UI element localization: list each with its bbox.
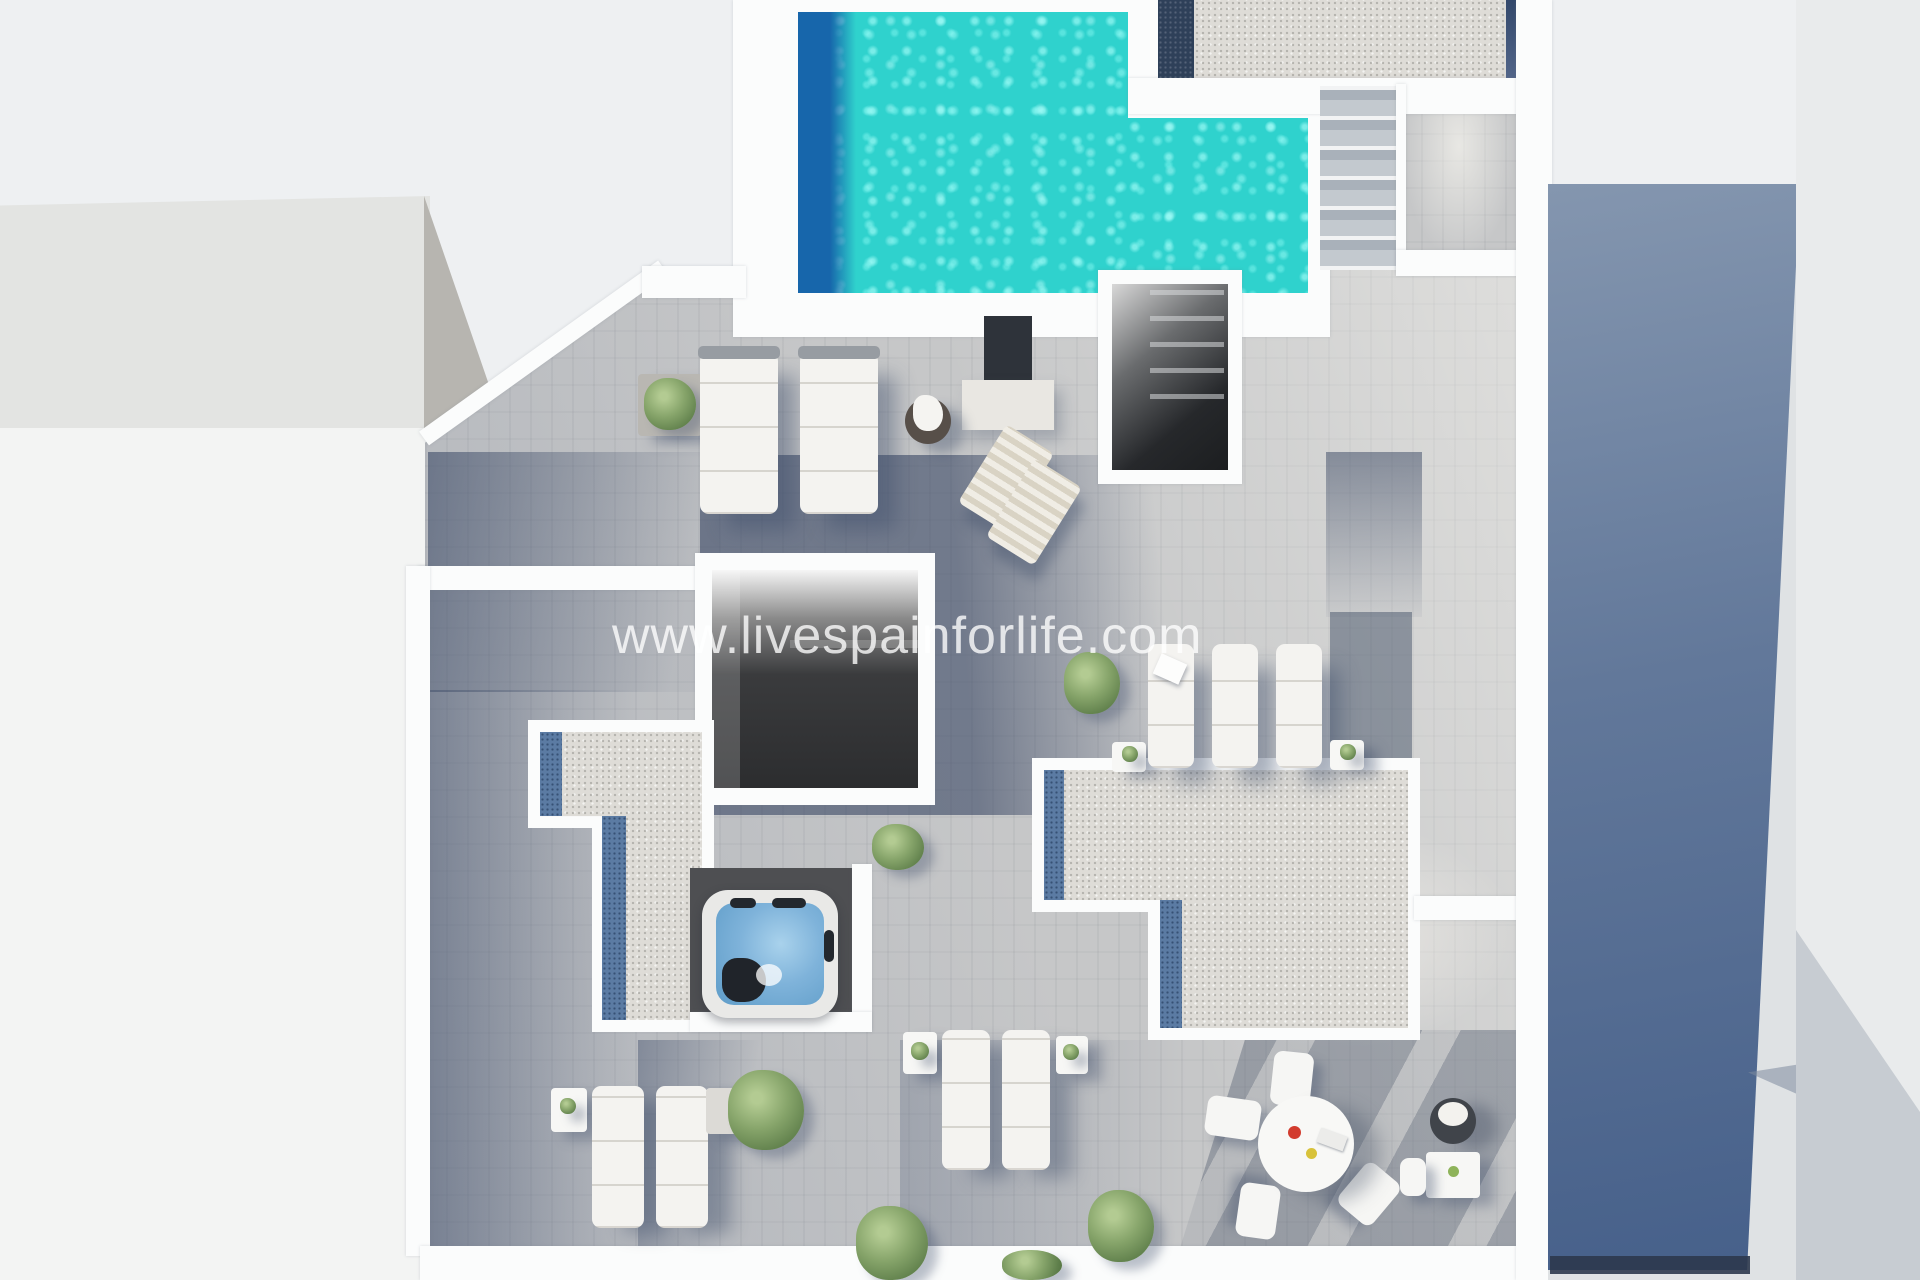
small-chair-br: [1400, 1158, 1426, 1196]
hot-tub-headrest-b: [772, 898, 806, 908]
sun-lounger-pool-2: [800, 352, 878, 514]
stairwell-central-opening: [712, 570, 918, 788]
sun-lounger-bc-1: [942, 1030, 990, 1170]
lounger-headrest: [798, 346, 880, 359]
dining-chair-west: [1203, 1094, 1262, 1141]
wall-connector-east: [1414, 896, 1522, 920]
left-ground-area: [0, 428, 425, 1280]
table-item-red: [1288, 1126, 1301, 1139]
plant-near-central-stairwell: [872, 824, 924, 870]
sun-lounger-bl-2: [656, 1086, 708, 1228]
pool-water-right-wing: [1128, 118, 1308, 293]
east-parapet-wall: [1516, 0, 1552, 1280]
left-building-roof: [0, 196, 430, 432]
hot-tub-wall-right: [852, 864, 872, 1030]
walkway-cross-wall: [1396, 250, 1522, 276]
dining-chair-south: [1234, 1181, 1281, 1240]
pool-deep-end: [798, 12, 856, 293]
lounger-headrest: [698, 346, 780, 359]
rooftop-floorplan-render: www.livespainforlife.com: [0, 0, 1920, 1280]
bc-table-plant-right: [1063, 1044, 1079, 1060]
plant-bottom-1: [856, 1206, 928, 1280]
hot-tub-foam: [756, 964, 782, 986]
shower-panel: [984, 316, 1032, 380]
stairs-railing: [1396, 84, 1406, 272]
hot-tub-headrest-c: [824, 930, 834, 962]
watermark-text: www.livespainforlife.com: [612, 606, 1202, 666]
mid-table-plant-right: [1340, 744, 1356, 760]
table-item-yellow: [1306, 1148, 1317, 1159]
sun-lounger-mid-2: [1212, 644, 1258, 768]
towel-on-table: [913, 395, 943, 431]
sun-lounger-mid-3: [1276, 644, 1322, 768]
east-wall-base-shadow: [1550, 1256, 1750, 1274]
gravel-roof-shadow-edge: [1158, 0, 1194, 82]
stairwell-east-opening: [1112, 284, 1228, 470]
gravel-roof-top-right: [1158, 0, 1506, 82]
terrace-wall-top: [642, 266, 746, 298]
sun-lounger-bl-1: [592, 1086, 644, 1228]
potted-plant-upper: [644, 378, 696, 430]
hot-tub-headrest-a: [730, 898, 756, 908]
plant-bottom-3: [1002, 1250, 1062, 1280]
gravel-roof-center-blue-strip-b: [1160, 900, 1182, 1028]
exterior-stairs: [1320, 86, 1398, 270]
bl-big-plant: [728, 1070, 804, 1150]
interior-wall-horizontal: [418, 566, 714, 590]
terrace-wall-bottom: [420, 1246, 1520, 1280]
bc-table-plant-left: [911, 1042, 929, 1060]
gravel-roof-center-blue-strip-a: [1044, 770, 1064, 900]
terrace-wall-left: [406, 566, 430, 1256]
shower-tray: [962, 380, 1054, 430]
mid-table-plant-left: [1122, 746, 1138, 762]
planter-flowers: [1438, 1102, 1468, 1126]
gravel-roof-left-blue-strip-a: [540, 732, 562, 816]
bl-table-plant: [560, 1098, 576, 1114]
gravel-roof-left-blue-strip-b: [602, 816, 626, 1020]
sun-lounger-pool-1: [700, 352, 778, 514]
plant-bottom-2: [1088, 1190, 1154, 1262]
green-apple: [1448, 1166, 1459, 1177]
sun-lounger-bc-2: [1002, 1030, 1050, 1170]
